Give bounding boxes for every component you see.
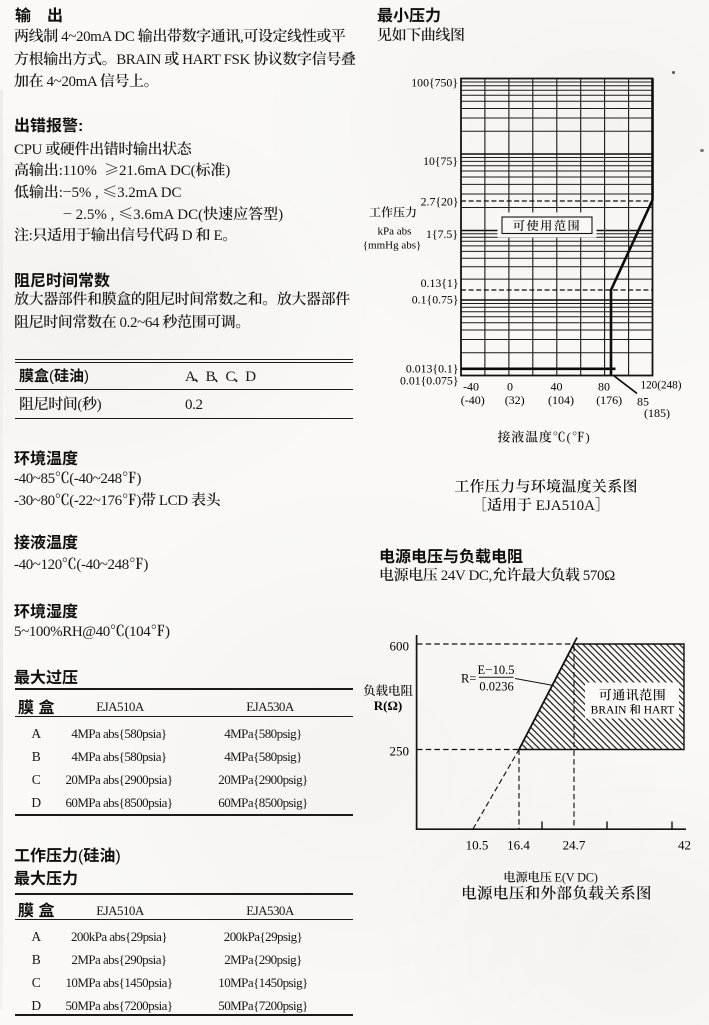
svg-text:250: 250: [390, 741, 410, 760]
svg-text:(32): (32): [505, 391, 525, 408]
svg-text:42: 42: [678, 835, 691, 854]
svg-text:(185): (185): [644, 404, 670, 421]
svg-text:0.1{0.75}: 0.1{0.75}: [412, 291, 459, 308]
svg-text:600: 600: [390, 636, 410, 655]
svg-text:100{750}: 100{750}: [411, 74, 458, 91]
svg-text:［适用于 EJA510A］: ［适用于 EJA510A］: [472, 494, 610, 515]
svg-text:24.7: 24.7: [563, 835, 586, 854]
svg-text:R=: R=: [461, 669, 476, 687]
svg-text:10.5: 10.5: [466, 835, 489, 854]
svg-text:BRAIN 和 HART: BRAIN 和 HART: [591, 702, 675, 718]
svg-text:可使用范围: 可使用范围: [513, 217, 581, 234]
svg-text:10{75}: 10{75}: [423, 152, 458, 169]
svg-text:0.01{0.075}: 0.01{0.075}: [400, 372, 459, 389]
svg-text:(104): (104): [548, 391, 574, 408]
svg-text:工作压力: 工作压力: [369, 204, 417, 221]
svg-text:2.7{20}: 2.7{20}: [421, 193, 459, 210]
svg-text:0.13{1}: 0.13{1}: [421, 274, 459, 291]
svg-text:0.0236: 0.0236: [479, 677, 513, 695]
svg-text:16.4: 16.4: [507, 835, 530, 854]
svg-text:(176): (176): [596, 391, 622, 408]
svg-text:(-40): (-40): [461, 391, 485, 408]
svg-text:电源电压和外部负载关系图: 电源电压和外部负载关系图: [461, 882, 652, 904]
svg-text:1{7.5}: 1{7.5}: [426, 225, 458, 242]
svg-text:R(Ω): R(Ω): [374, 695, 402, 714]
svg-text:120(248): 120(248): [640, 377, 681, 393]
svg-text:{mmHg abs}: {mmHg abs}: [363, 237, 422, 253]
svg-text:接液温度℃(℉): 接液温度℃(℉): [497, 427, 590, 446]
svg-text:E−10.5: E−10.5: [478, 660, 515, 678]
